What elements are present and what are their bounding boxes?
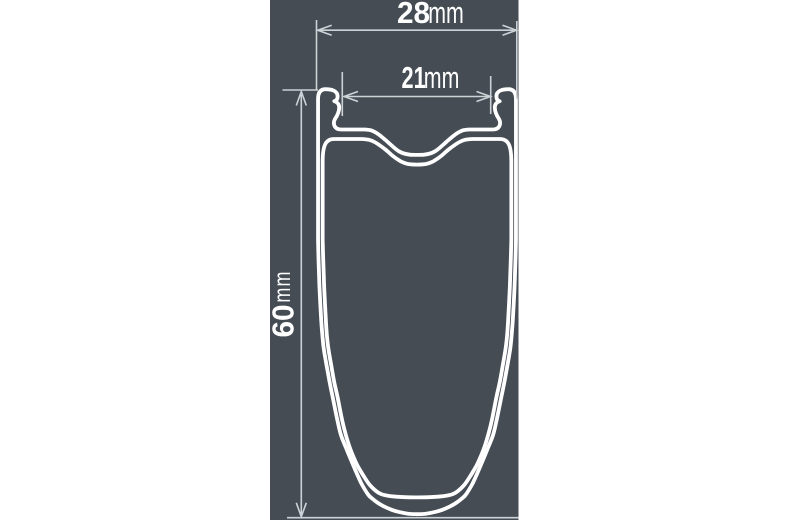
svg-text:mm: mm [428,0,464,30]
svg-text:mm: mm [424,60,460,95]
svg-text:28: 28 [397,0,430,30]
svg-text:60: 60 [266,304,301,337]
svg-text:mm: mm [270,270,296,302]
svg-text:21: 21 [402,60,426,95]
